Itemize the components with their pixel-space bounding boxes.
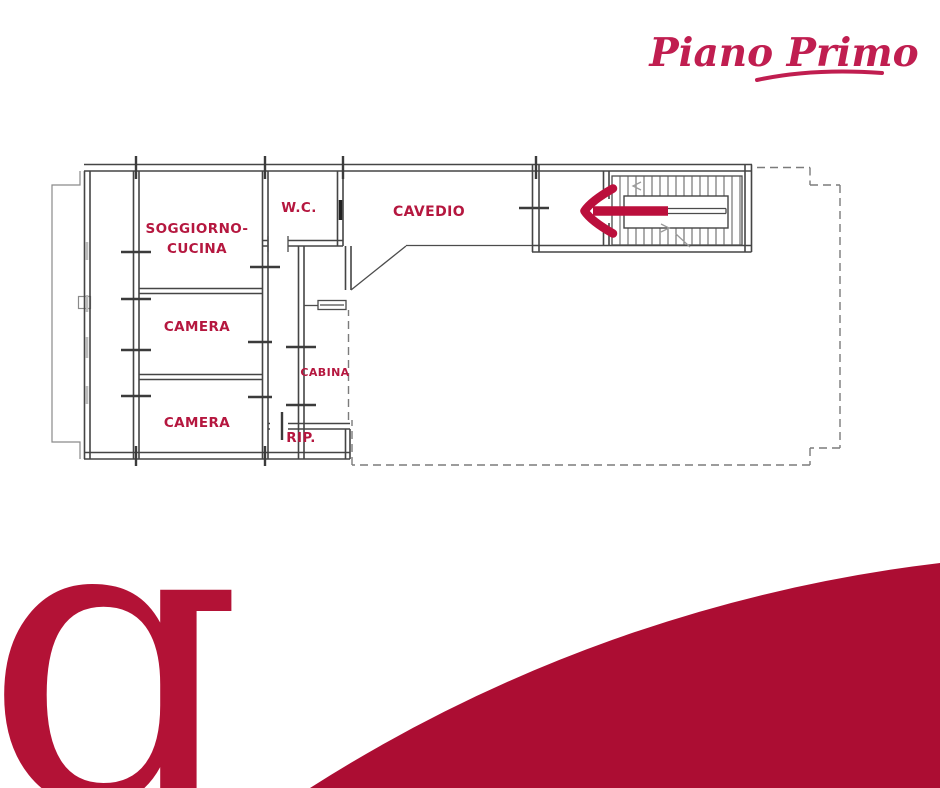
room-label-camera-top: CAMERA xyxy=(164,319,230,335)
page-title: Piano Primo xyxy=(648,30,918,80)
floor-plan-drawing: SOGGIORNO- CUCINA CAMERA CAMERA W.C. CAV… xyxy=(0,0,940,788)
room-labels: SOGGIORNO- CUCINA CAMERA CAMERA W.C. CAV… xyxy=(146,200,465,446)
room-label-soggiorno-line2: CUCINA xyxy=(167,241,227,257)
room-label-soggiorno-line1: SOGGIORNO- xyxy=(146,221,249,237)
brand-curve-shape xyxy=(310,563,940,788)
room-label-wc: W.C. xyxy=(281,200,317,216)
room-label-cavedio: CAVEDIO xyxy=(393,204,465,220)
room-label-cabina: CABINA xyxy=(300,366,349,379)
brand-logo-g: g xyxy=(0,424,243,788)
window-ticks xyxy=(87,156,549,466)
floor-plan-page: SOGGIORNO- CUCINA CAMERA CAMERA W.C. CAV… xyxy=(0,0,940,788)
room-label-rip: RIP. xyxy=(286,430,316,446)
page-title-text: Piano Primo xyxy=(648,30,918,76)
